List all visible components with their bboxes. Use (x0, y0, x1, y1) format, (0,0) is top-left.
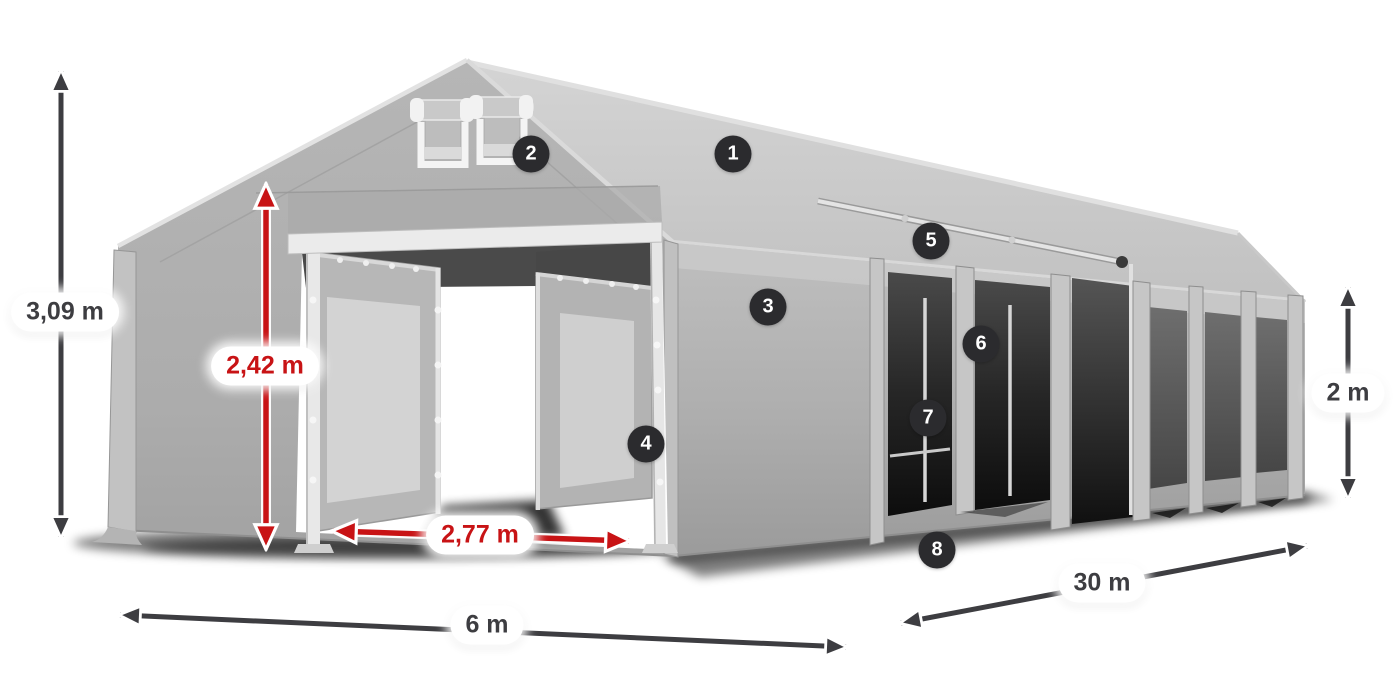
label-entrance-height: 2,42 m (211, 347, 319, 386)
side-window-pane-2 (1205, 312, 1243, 481)
feature-marker-5[interactable]: 5 (913, 223, 950, 260)
label-tent-length: 30 m (1059, 564, 1146, 603)
front-entrance (288, 222, 678, 553)
tent-illustration (0, 0, 1400, 700)
entrance-right-door (536, 242, 658, 510)
gable-vent-1 (410, 98, 474, 165)
side-window-pane-1 (1148, 307, 1187, 489)
label-side-height: 2 m (1311, 374, 1384, 413)
tent-dimension-diagram: { "diagram": { "title": "Marquee tent di… (0, 0, 1400, 700)
feature-marker-2[interactable]: 2 (513, 136, 550, 173)
feature-marker-1[interactable]: 1 (715, 136, 752, 173)
label-total-height: 3,09 m (11, 293, 119, 332)
side-window-pane-3 (1255, 317, 1287, 473)
feature-marker-4[interactable]: 4 (628, 426, 665, 463)
side-doorway-opening (1072, 278, 1133, 524)
feature-marker-6[interactable]: 6 (963, 326, 1000, 363)
feature-marker-8[interactable]: 8 (919, 532, 956, 569)
label-tent-width: 6 m (450, 606, 523, 645)
side-window-opening-1 (888, 272, 952, 516)
entrance-left-door (318, 253, 442, 531)
feature-marker-7[interactable]: 7 (910, 400, 947, 437)
side-window-opening-2 (975, 280, 1050, 510)
label-entrance-width: 2,77 m (426, 516, 534, 555)
feature-marker-3[interactable]: 3 (750, 289, 787, 326)
